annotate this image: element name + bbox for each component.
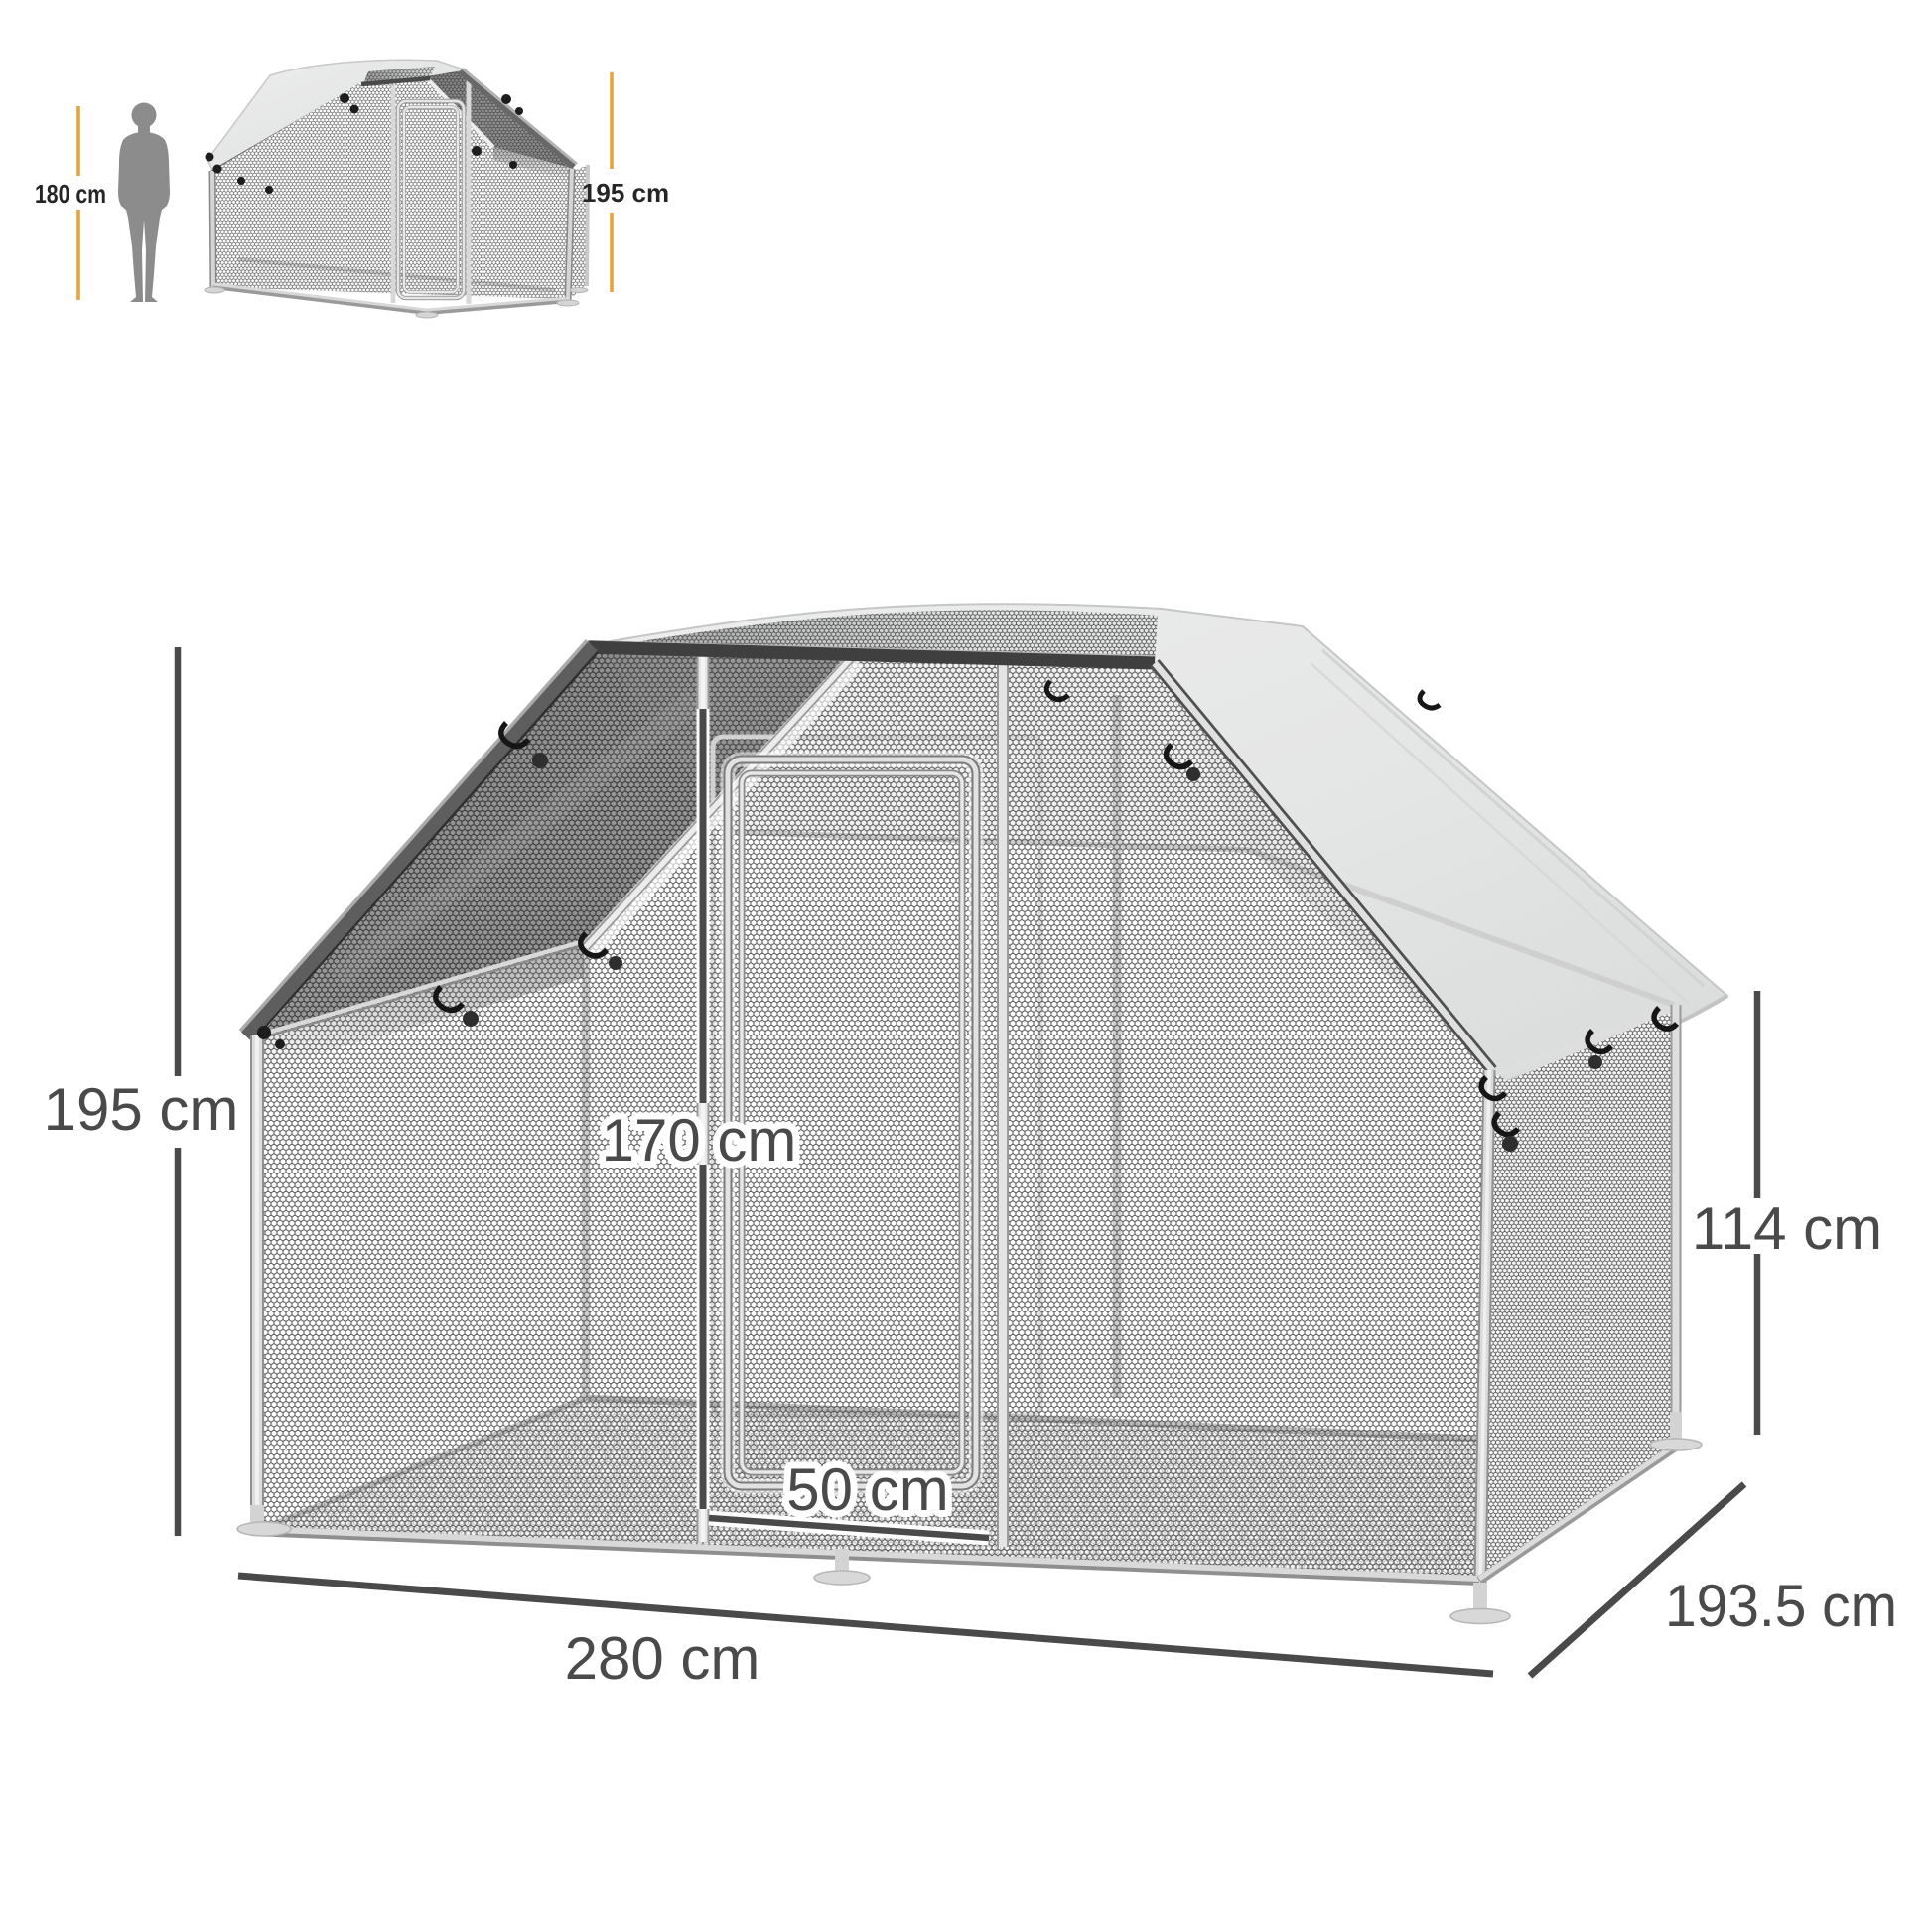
svg-text:193.5 cm: 193.5 cm	[1665, 1573, 1897, 1639]
svg-text:180 cm: 180 cm	[35, 179, 106, 208]
svg-text:195 cm: 195 cm	[44, 1076, 239, 1143]
svg-text:170 cm: 170 cm	[602, 1107, 797, 1173]
svg-text:195 cm: 195 cm	[582, 178, 669, 207]
svg-text:280 cm: 280 cm	[565, 1625, 760, 1692]
svg-text:50 cm: 50 cm	[786, 1456, 948, 1523]
svg-text:114 cm: 114 cm	[1692, 1195, 1882, 1262]
